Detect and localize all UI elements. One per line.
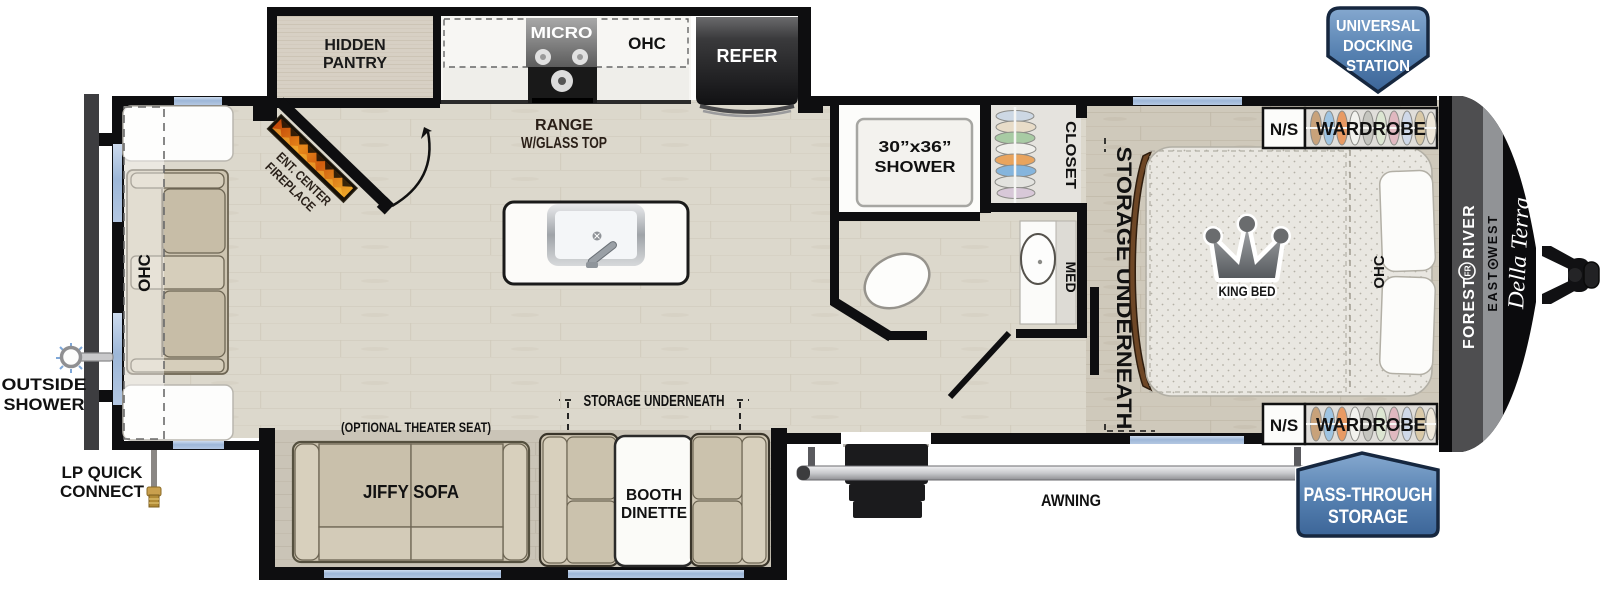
- svg-text:FR: FR: [1463, 265, 1473, 276]
- svg-text:OHC: OHC: [1371, 255, 1388, 289]
- svg-text:OUTSIDE: OUTSIDE: [2, 375, 87, 394]
- svg-text:JIFFY SOFA: JIFFY SOFA: [363, 482, 459, 502]
- svg-text:UNIVERSAL: UNIVERSAL: [1336, 18, 1420, 35]
- svg-text:N/S: N/S: [1270, 120, 1298, 139]
- svg-text:MICRO: MICRO: [531, 25, 593, 42]
- svg-text:W/GLASS TOP: W/GLASS TOP: [521, 135, 607, 152]
- svg-text:(OPTIONAL THEATER SEAT): (OPTIONAL THEATER SEAT): [341, 419, 491, 435]
- svg-text:KING BED: KING BED: [1219, 283, 1276, 299]
- svg-text:RIVER: RIVER: [1461, 204, 1478, 259]
- svg-text:WARDROBE: WARDROBE: [1316, 415, 1426, 435]
- svg-text:RANGE: RANGE: [535, 117, 593, 134]
- svg-text:PASS-THROUGH: PASS-THROUGH: [1304, 485, 1433, 506]
- svg-text:REFER: REFER: [716, 46, 777, 66]
- svg-text:HIDDEN: HIDDEN: [324, 37, 385, 54]
- svg-text:BOOTH: BOOTH: [626, 487, 682, 504]
- svg-text:MED: MED: [1063, 261, 1079, 292]
- svg-text:SHOWER: SHOWER: [4, 395, 85, 414]
- svg-text:STORAGE UNDERNEATH: STORAGE UNDERNEATH: [584, 393, 725, 410]
- svg-text:STATION: STATION: [1346, 58, 1410, 75]
- svg-text:OHC: OHC: [628, 34, 666, 53]
- svg-text:WEST: WEST: [1486, 214, 1500, 258]
- svg-text:N/S: N/S: [1270, 416, 1298, 435]
- svg-text:EAST: EAST: [1486, 270, 1500, 311]
- svg-text:OHC: OHC: [135, 254, 154, 292]
- svg-text:DOCKING: DOCKING: [1343, 38, 1413, 55]
- svg-text:WARDROBE: WARDROBE: [1316, 119, 1426, 139]
- svg-text:FOREST: FOREST: [1461, 277, 1478, 349]
- svg-text:LP QUICK: LP QUICK: [62, 463, 144, 482]
- svg-text:STORAGE: STORAGE: [1328, 507, 1408, 528]
- svg-text:AWNING: AWNING: [1041, 491, 1101, 510]
- svg-text:PANTRY: PANTRY: [323, 55, 387, 72]
- svg-text:SHOWER: SHOWER: [875, 159, 957, 176]
- svg-text:30”x36”: 30”x36”: [879, 139, 952, 156]
- svg-text:CONNECT: CONNECT: [60, 482, 145, 501]
- svg-text:DINETTE: DINETTE: [621, 505, 687, 522]
- svg-text:CLOSET: CLOSET: [1062, 121, 1079, 189]
